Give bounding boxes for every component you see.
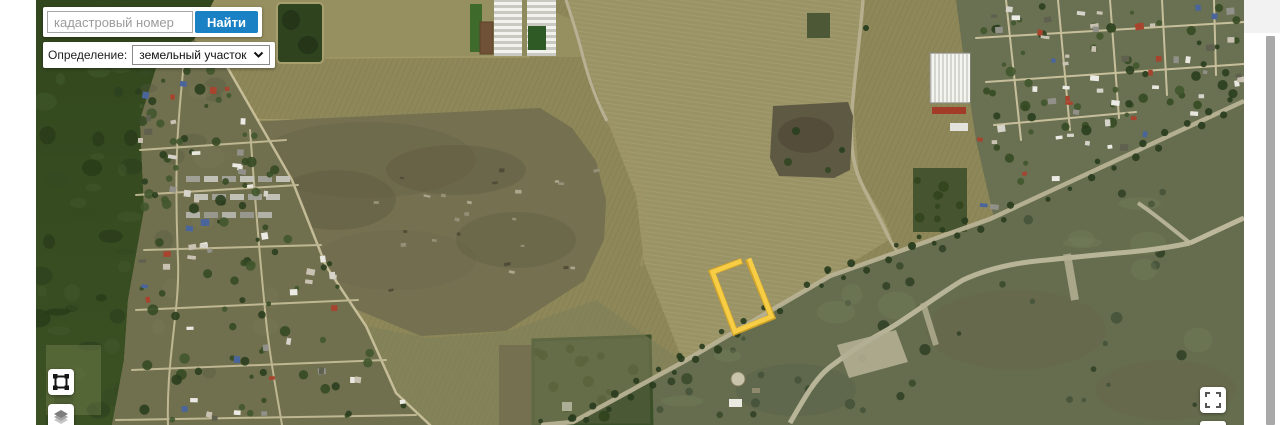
- search-button[interactable]: Найти: [195, 11, 258, 33]
- page-root: Найти Определение: земельный участок: [0, 0, 1280, 425]
- chevron-down-icon: [253, 52, 264, 59]
- search-panel: Найти: [43, 7, 262, 37]
- draw-extent-icon: [53, 374, 69, 390]
- layers-icon: [52, 408, 70, 425]
- definition-selected-value: земельный участок: [139, 48, 246, 62]
- layers-button[interactable]: [48, 404, 74, 425]
- definition-select[interactable]: земельный участок: [132, 45, 270, 65]
- right-margin: [1244, 0, 1280, 425]
- scrollbar-track-top: [1244, 0, 1280, 33]
- definition-panel: Определение: земельный участок: [43, 42, 275, 68]
- draw-extent-button[interactable]: [48, 369, 74, 395]
- partial-bottom-button[interactable]: [1200, 421, 1226, 425]
- fullscreen-icon: [1205, 392, 1221, 408]
- fullscreen-button[interactable]: [1200, 387, 1226, 413]
- scrollbar-thumb[interactable]: [1266, 36, 1275, 425]
- definition-label: Определение:: [48, 48, 127, 62]
- search-input[interactable]: [47, 11, 193, 33]
